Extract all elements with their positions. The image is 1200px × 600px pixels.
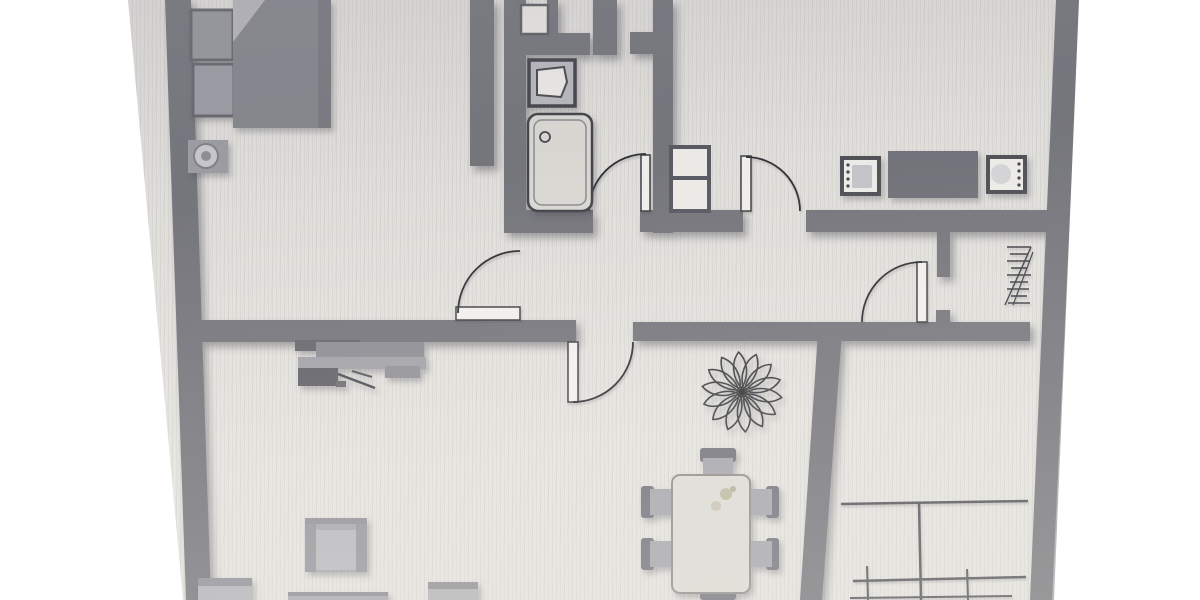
floor-plan-svg — [0, 0, 1200, 600]
appliance-left-knob-3 — [846, 177, 849, 180]
couch-left — [198, 586, 252, 600]
plant — [702, 352, 783, 433]
couch-left-band — [198, 578, 252, 586]
sink-basin — [537, 67, 567, 97]
bedroom-door-leaf — [456, 307, 520, 320]
bedroom-bathroom-wall — [470, 0, 494, 166]
sideboard-cable-2 — [352, 371, 372, 377]
bathroom-door-leaf — [641, 155, 650, 211]
kitchen-appliance-right-inner — [991, 164, 1011, 184]
kitchen-counter — [888, 151, 978, 198]
bathroom-niche-stub — [593, 0, 617, 55]
bathroom-bottom-wall — [504, 210, 593, 233]
bedroom-bottom-wall — [186, 320, 576, 342]
bedroom-door-arc — [458, 251, 520, 313]
balcony-post-1 — [867, 566, 868, 600]
wardrobe-top-cell — [191, 10, 233, 60]
right-outer-wall — [1030, 0, 1080, 600]
balcony-rail-bottom — [850, 596, 1012, 598]
kitchen-bottom-wall-right — [806, 210, 1064, 232]
furniture-layer — [188, 0, 1025, 600]
symbols-layer — [841, 247, 1033, 600]
dining-chair-right1-seat — [750, 489, 772, 515]
sideboard-left-block — [298, 368, 338, 386]
appliance-right-knob-3 — [1017, 176, 1020, 179]
dining-chair-left1-seat — [650, 489, 672, 515]
appliance-left-knob-1 — [846, 163, 849, 166]
bathroom-niche-wall — [504, 33, 590, 55]
balcony-rail-low — [853, 577, 1026, 581]
balcony-rail-top — [841, 501, 1028, 504]
wardrobe-bottom-cell — [193, 64, 234, 116]
entry-door-stub-bottom — [936, 310, 950, 322]
livingroom-door-arc — [573, 342, 633, 402]
kitchen-appliance-left-inner — [852, 165, 872, 188]
armchair-seat — [316, 530, 356, 570]
balcony-post-2 — [967, 569, 968, 600]
kitchen-door-arc — [746, 157, 800, 211]
appliance-right-knob-1 — [1017, 162, 1020, 165]
kitchen-door-leaf — [741, 156, 751, 211]
couch-mid-band — [288, 592, 388, 596]
table-decor-dot-2 — [711, 501, 721, 511]
appliance-left-knob-2 — [846, 170, 849, 173]
bathroom-shaft-cell — [521, 5, 548, 34]
couch-right-band — [428, 582, 478, 589]
appliance-left-knob-4 — [846, 184, 849, 187]
dining-chair-right2-seat — [750, 541, 772, 567]
bathroom-door-arc — [589, 154, 646, 211]
table-decor-dot-3 — [730, 486, 736, 492]
bed-side-band — [318, 0, 331, 128]
dining-table — [672, 475, 750, 593]
plant-center — [739, 389, 746, 396]
entry-door-leaf — [917, 262, 927, 322]
couch-right — [428, 589, 478, 600]
floorplan-photo — [0, 0, 1200, 600]
balcony-divider — [919, 503, 921, 600]
sideboard-upper — [316, 342, 424, 359]
dining-chair-left2-seat — [650, 541, 672, 567]
livingroom-door-leaf — [568, 342, 578, 402]
appliance-right-knob-2 — [1017, 169, 1020, 172]
dining-balcony-wall — [800, 332, 842, 600]
bathtub-outer — [528, 114, 592, 211]
couch-mid — [288, 596, 388, 600]
armchair-arm-right — [356, 524, 367, 572]
entry-door-arc — [862, 262, 922, 322]
sideboard-right-block — [385, 366, 420, 378]
sideboard-knob — [336, 381, 346, 387]
radiator-diag-2 — [1013, 252, 1033, 305]
appliance-right-knob-4 — [1017, 183, 1020, 186]
entry-door-stub-top — [937, 232, 950, 277]
floorplan-screenshot — [0, 0, 1200, 600]
nightstand-lamp-inner — [201, 151, 211, 161]
armchair-arm-left — [305, 524, 316, 572]
kitchen-bottom-wall-left — [640, 210, 743, 232]
